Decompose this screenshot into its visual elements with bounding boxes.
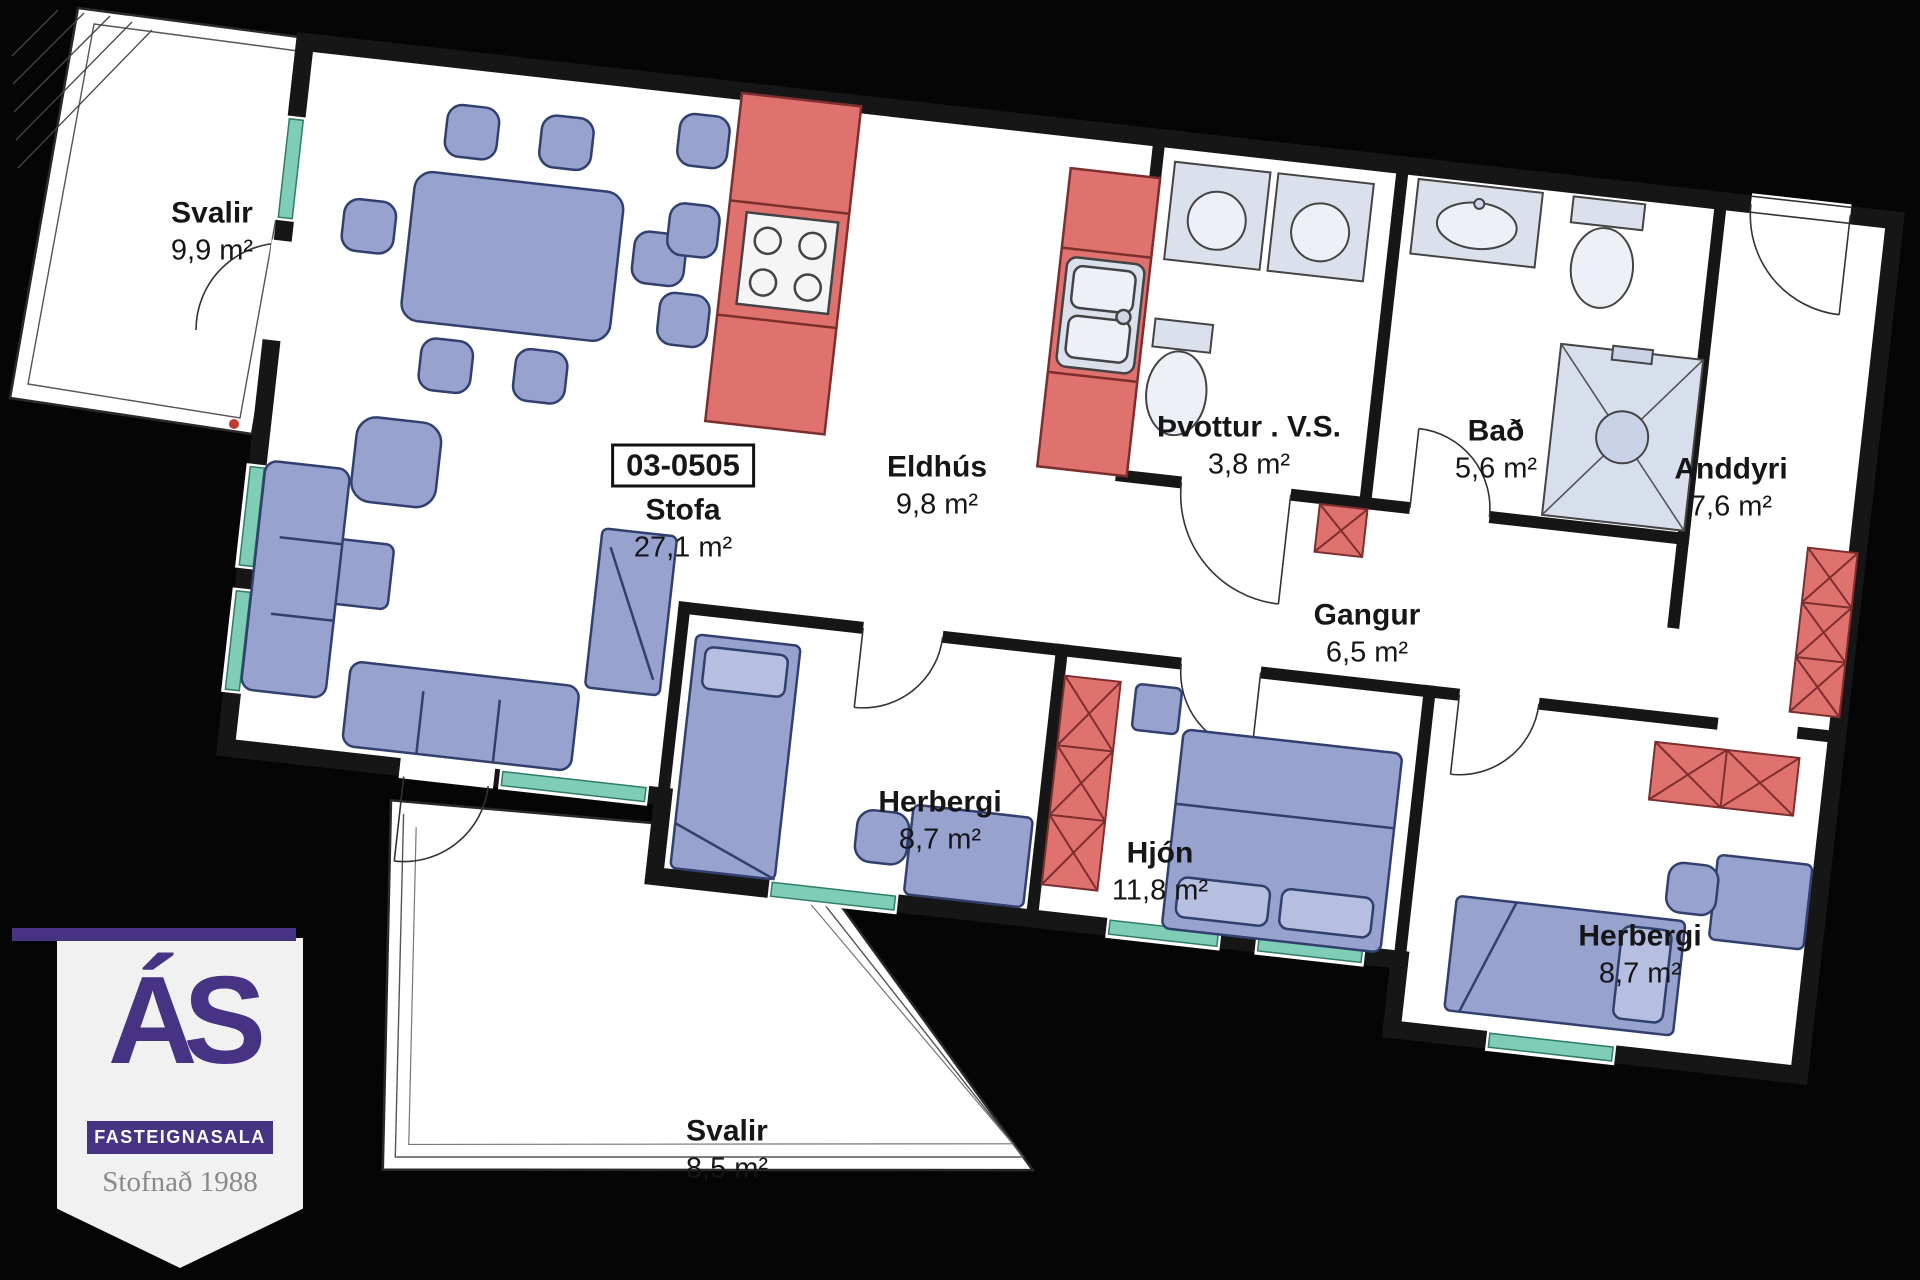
desk xyxy=(1709,855,1813,950)
logo-tagline: Stofnað 1988 xyxy=(57,1166,303,1199)
bar-chair xyxy=(676,112,731,169)
agency-logo: ÁS FASTEIGNASALA Stofnað 1988 xyxy=(57,938,303,1268)
bar-chair xyxy=(656,291,711,348)
room-label-svalir-top: Svalir 9,9 m² xyxy=(171,195,253,270)
room-label-herbergi-mid: Herbergi 8,7 m² xyxy=(878,784,1001,859)
room-label-anddyri: Anddyri 7,6 m² xyxy=(1674,451,1787,526)
room-name: Þvottur . V.S. xyxy=(1157,409,1341,447)
apartment-plan xyxy=(170,30,1902,1280)
room-label-thvottur: Þvottur . V.S. 3,8 m² xyxy=(1157,409,1341,484)
room-area: 8,7 m² xyxy=(878,822,1001,859)
room-name: Svalir xyxy=(171,195,253,233)
room-name: Herbergi xyxy=(1578,918,1701,956)
room-area: 6,5 m² xyxy=(1314,635,1421,672)
room-name: Svalir xyxy=(686,1113,768,1151)
room-name: Bað xyxy=(1455,413,1537,451)
pillow xyxy=(1278,888,1374,938)
chair xyxy=(417,337,474,394)
room-area: 8,5 m² xyxy=(686,1151,768,1188)
room-area: 5,6 m² xyxy=(1455,451,1537,488)
room-name: Hjón xyxy=(1112,835,1208,873)
chair xyxy=(340,198,397,255)
dining-table xyxy=(400,170,625,342)
chair xyxy=(511,348,568,405)
room-area: 9,9 m² xyxy=(171,233,253,270)
room-area: 8,7 m² xyxy=(1578,956,1701,993)
marker-dot xyxy=(229,419,239,429)
room-label-herbergi-right: Herbergi 8,7 m² xyxy=(1578,918,1701,993)
stove-icon xyxy=(737,212,839,314)
room-area: 11,8 m² xyxy=(1112,873,1208,910)
unit-number-badge: 03-0505 xyxy=(611,444,755,488)
room-label-hjon: Hjón 11,8 m² xyxy=(1112,835,1208,910)
room-area: 9,8 m² xyxy=(887,487,987,524)
logo-brand-letters: ÁS xyxy=(57,946,303,1096)
armchair xyxy=(349,415,443,509)
room-name: Eldhús xyxy=(887,449,987,487)
room-area: 27,1 m² xyxy=(611,530,755,567)
room-label-stofa: 03-0505 Stofa 27,1 m² xyxy=(611,444,755,567)
room-name: Herbergi xyxy=(878,784,1001,822)
logo-subtitle: FASTEIGNASALA xyxy=(87,1121,273,1154)
chair xyxy=(538,114,595,171)
room-name: Stofa xyxy=(611,492,755,530)
room-label-eldhus: Eldhús 9,8 m² xyxy=(887,449,987,524)
logo-top-bar xyxy=(12,928,296,941)
pillow xyxy=(701,646,788,697)
room-area: 3,8 m² xyxy=(1157,447,1341,484)
room-label-gangur: Gangur 6,5 m² xyxy=(1314,597,1421,672)
bar-chair xyxy=(666,202,721,259)
room-label-svalir-bottom: Svalir 8,5 m² xyxy=(686,1113,768,1188)
nightstand xyxy=(1132,684,1183,735)
toilet-icon xyxy=(1152,319,1213,353)
room-name: Gangur xyxy=(1314,597,1421,635)
room-name: Anddyri xyxy=(1674,451,1787,489)
chair xyxy=(443,103,500,160)
room-area: 7,6 m² xyxy=(1674,489,1787,526)
room-label-bad: Bað 5,6 m² xyxy=(1455,413,1537,488)
desk-chair xyxy=(1665,861,1720,916)
floor-plan-page: Svalir 9,9 m² 03-0505 Stofa 27,1 m² Eldh… xyxy=(0,0,1920,1280)
